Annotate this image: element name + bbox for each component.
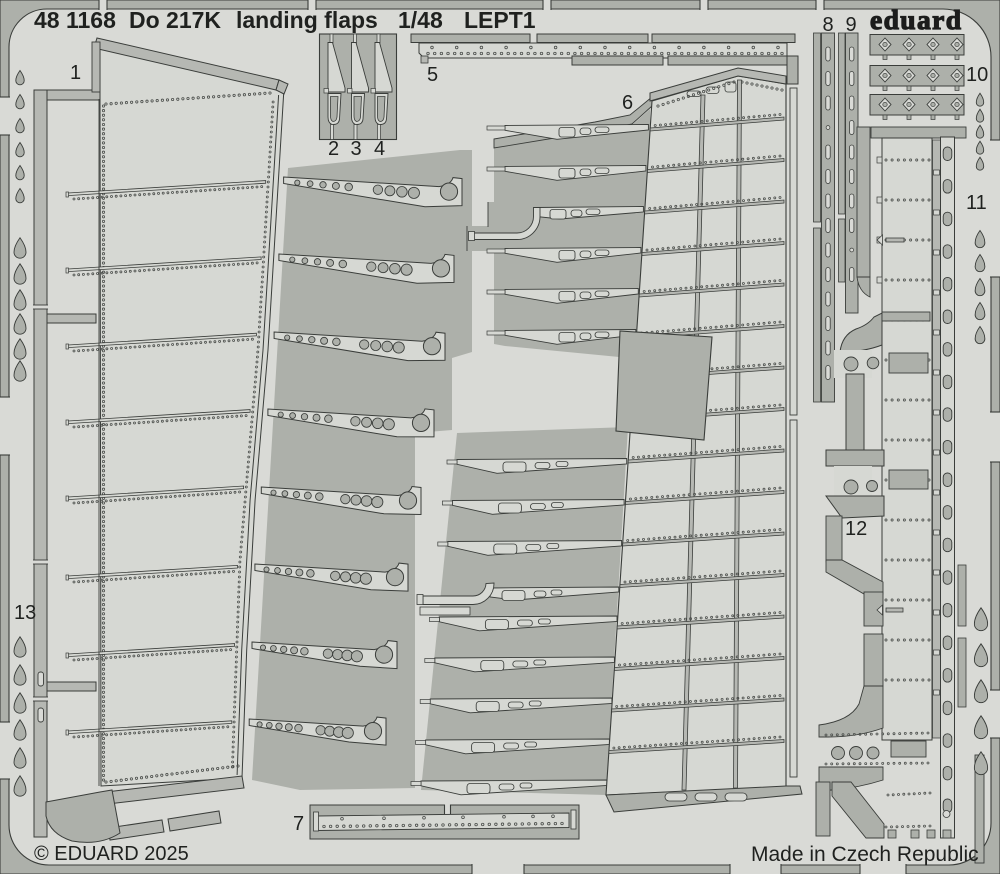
svg-text:12: 12 (845, 518, 867, 540)
svg-text:8: 8 (823, 14, 834, 36)
svg-text:LEPT1: LEPT1 (464, 7, 536, 33)
svg-text:5: 5 (427, 64, 438, 86)
svg-text:11: 11 (966, 192, 987, 214)
svg-text:Made in Czech Republic: Made in Czech Republic (751, 843, 979, 866)
svg-text:1/48: 1/48 (398, 7, 443, 33)
svg-text:© EDUARD 2025: © EDUARD 2025 (34, 843, 189, 865)
svg-text:7: 7 (293, 813, 304, 835)
svg-text:10: 10 (966, 64, 988, 86)
svg-text:6: 6 (622, 92, 633, 114)
svg-text:Do 217K: Do 217K (129, 7, 221, 33)
svg-text:48 1168: 48 1168 (34, 7, 116, 33)
svg-text:2: 2 (328, 138, 339, 160)
svg-text:eduard: eduard (870, 4, 962, 35)
svg-text:4: 4 (374, 138, 385, 160)
svg-text:9: 9 (846, 14, 857, 36)
svg-text:3: 3 (351, 138, 362, 160)
svg-text:13: 13 (14, 602, 36, 624)
svg-text:1: 1 (70, 62, 81, 84)
svg-text:landing flaps: landing flaps (236, 7, 378, 33)
